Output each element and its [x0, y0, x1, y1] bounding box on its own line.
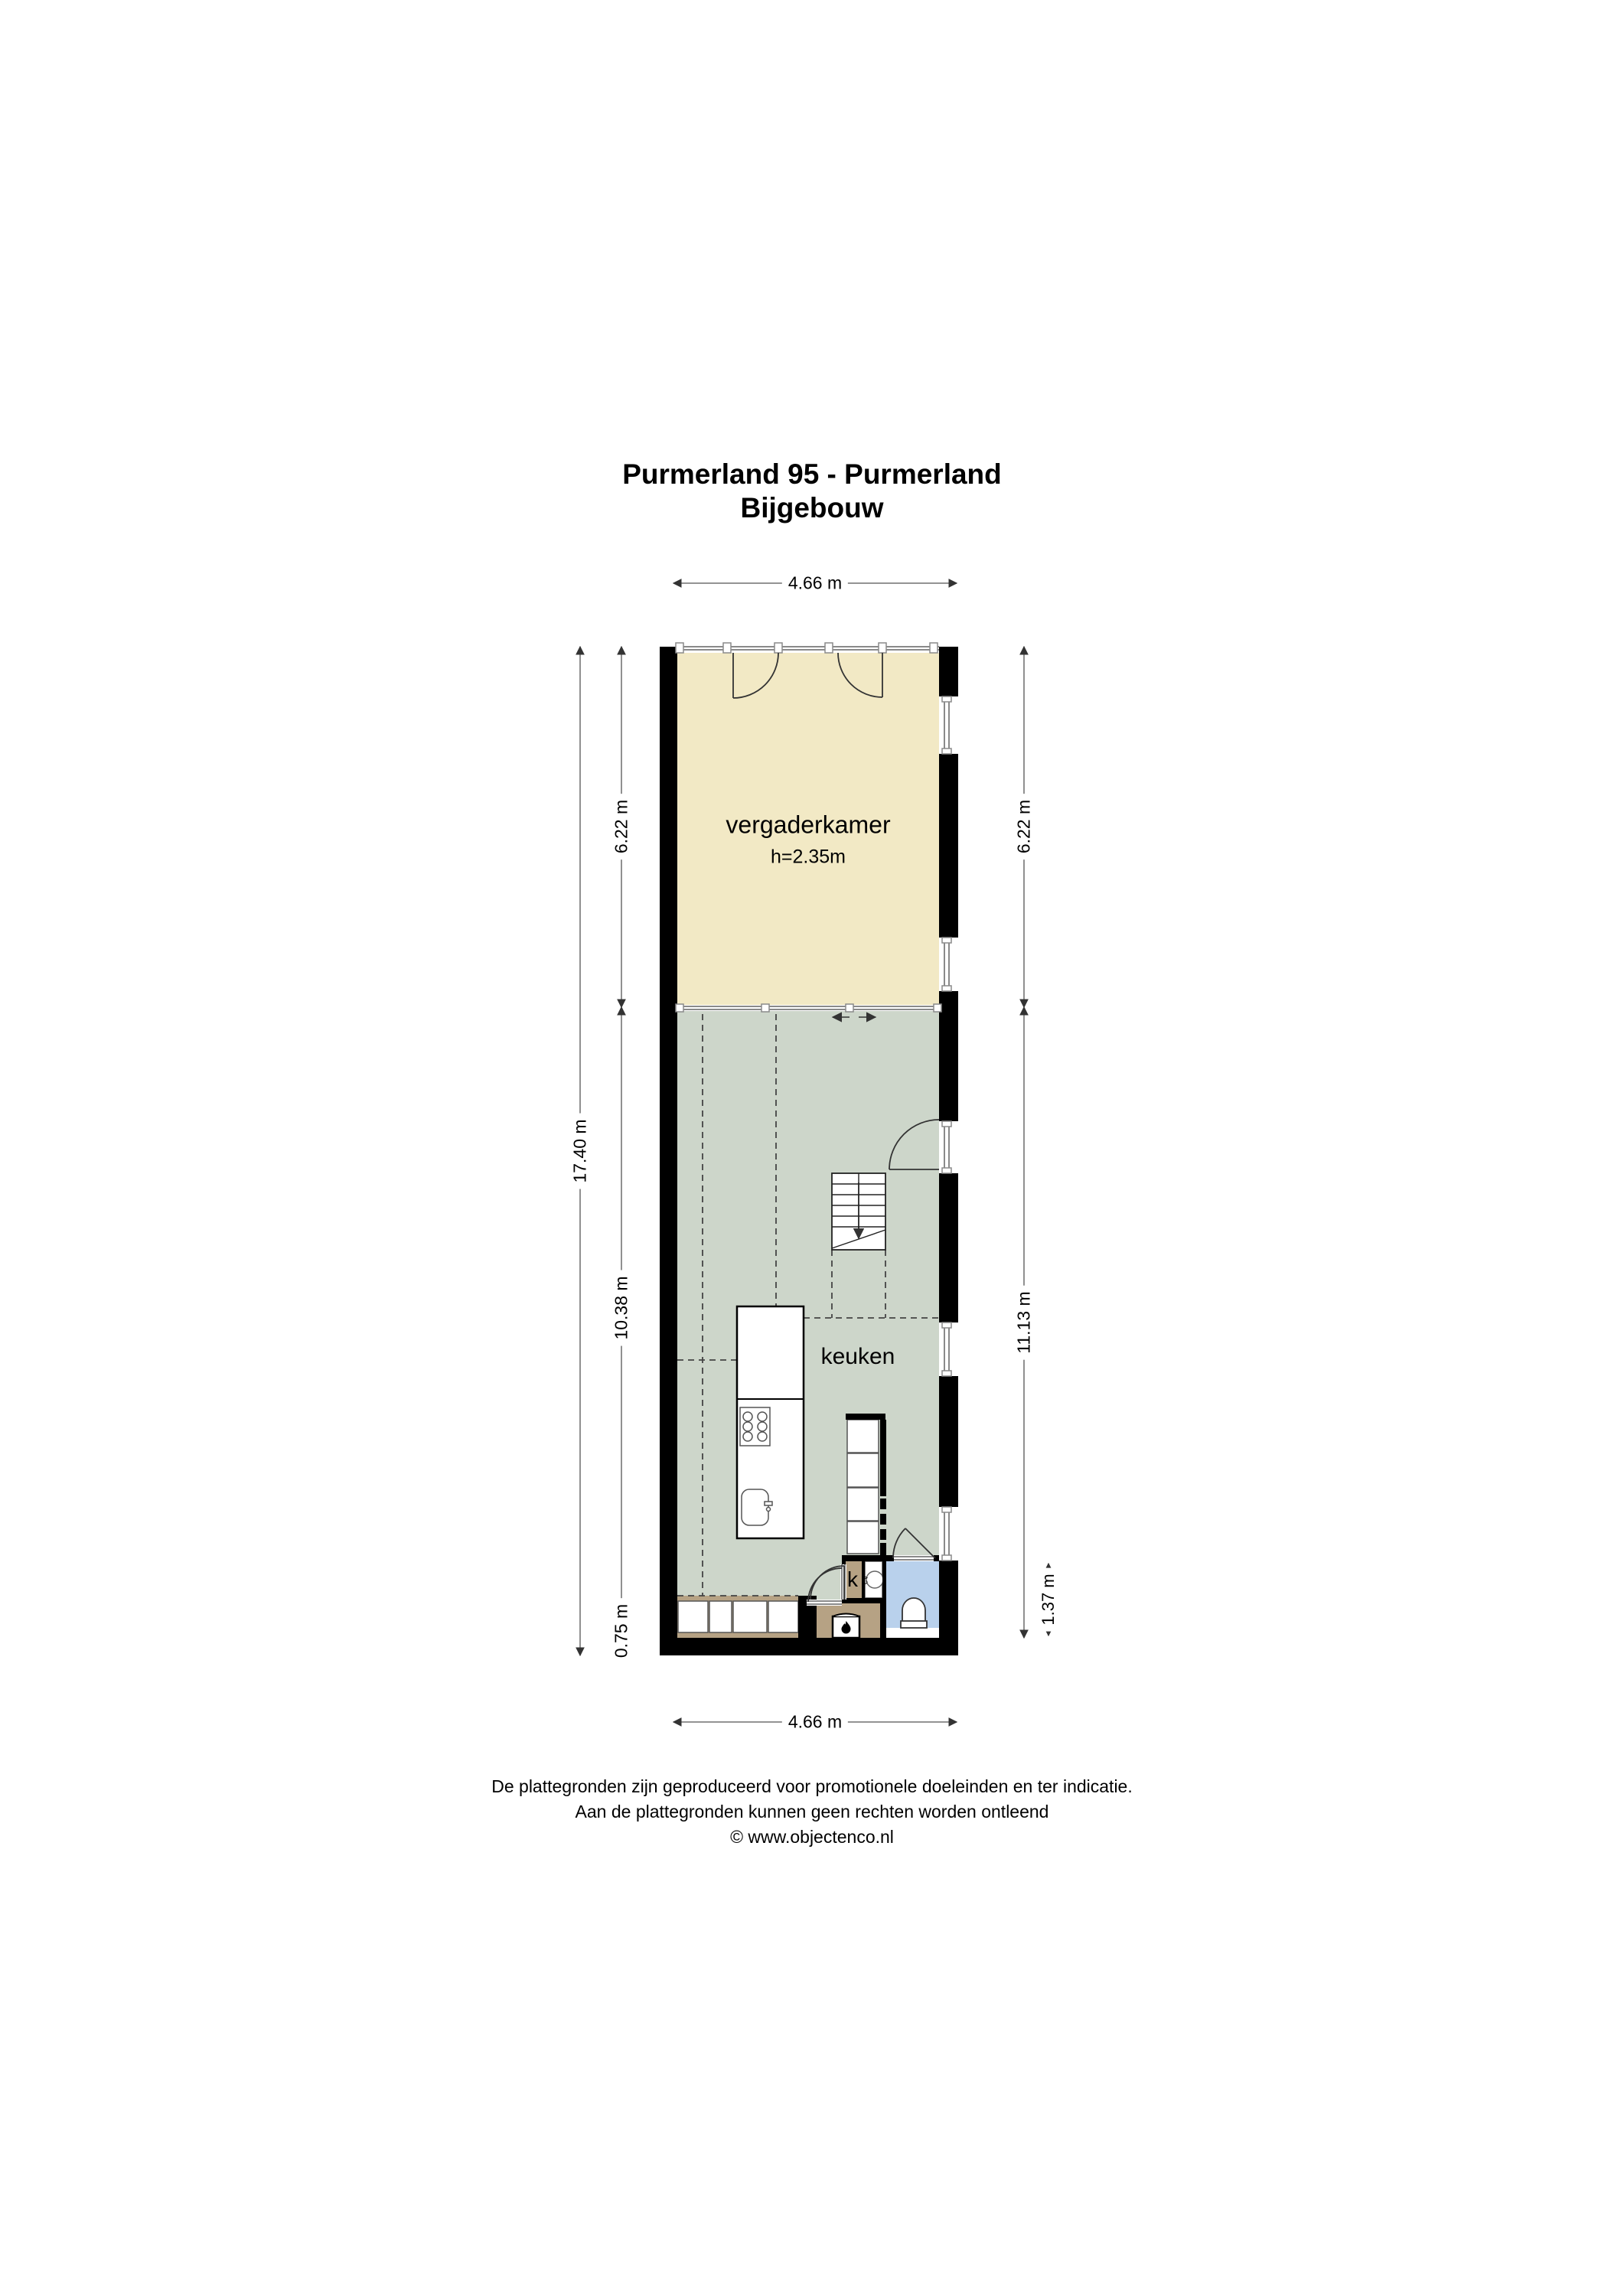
dim-top-width: 4.66 m	[782, 573, 848, 594]
window-icon	[939, 696, 958, 754]
room-fills	[677, 651, 940, 1638]
dim-left-top: 6.22 m	[611, 794, 632, 859]
floorplan-drawing	[0, 0, 1624, 2296]
toilet-door-panel	[894, 1555, 934, 1561]
nook-door-panel	[807, 1600, 842, 1606]
kitchen-island	[737, 1306, 804, 1538]
kitchen-label: keuken	[821, 1344, 895, 1370]
side-counter-units	[847, 1420, 879, 1554]
disclaimer-line-3: © www.objectenco.nl	[0, 1825, 1624, 1850]
kitchen-area	[677, 1006, 939, 1600]
glazed-door-panel	[939, 1121, 958, 1173]
dim-bottom-width: 4.66 m	[782, 1712, 848, 1733]
closet-label: k	[847, 1567, 858, 1592]
title-line-2: Bijgebouw	[0, 491, 1624, 525]
boiler-label: cv	[862, 1575, 870, 1584]
title-line-1: Purmerland 95 - Purmerland	[0, 458, 1624, 491]
closet-door-panel	[840, 1564, 846, 1600]
dim-left-middle: 10.38 m	[611, 1270, 632, 1345]
window-icon	[939, 1322, 958, 1376]
dim-left-bottom: 0.75 m	[611, 1598, 632, 1664]
fireplace-icon	[833, 1614, 859, 1639]
floorplan-sheet: Purmerland 95 - Purmerland Bijgebouw ver…	[0, 0, 1624, 2296]
window-icon	[939, 938, 958, 991]
disclaimer: De plattegronden zijn geproduceerd voor …	[0, 1774, 1624, 1850]
page-title: Purmerland 95 - Purmerland Bijgebouw	[0, 458, 1624, 525]
dim-right-top: 6.22 m	[1014, 794, 1035, 859]
window-icon	[939, 1507, 958, 1561]
stove-icon	[740, 1407, 770, 1446]
meeting-room-height-note: h=2.35m	[771, 846, 846, 869]
disclaimer-line-1: De plattegronden zijn geproduceerd voor …	[0, 1774, 1624, 1799]
front-glass-wall	[676, 643, 939, 653]
sink-icon	[742, 1489, 772, 1525]
dim-right-bottom: 1.37 m	[1039, 1567, 1058, 1631]
dim-right-middle: 11.13 m	[1014, 1285, 1035, 1359]
meeting-room-label: vergaderkamer	[726, 811, 890, 840]
counter-units	[678, 1601, 798, 1632]
disclaimer-line-2: Aan de plattegronden kunnen geen rechten…	[0, 1799, 1624, 1825]
staircase	[832, 1173, 885, 1250]
dim-left-total: 17.40 m	[570, 1113, 591, 1189]
toilet-icon	[901, 1598, 927, 1628]
